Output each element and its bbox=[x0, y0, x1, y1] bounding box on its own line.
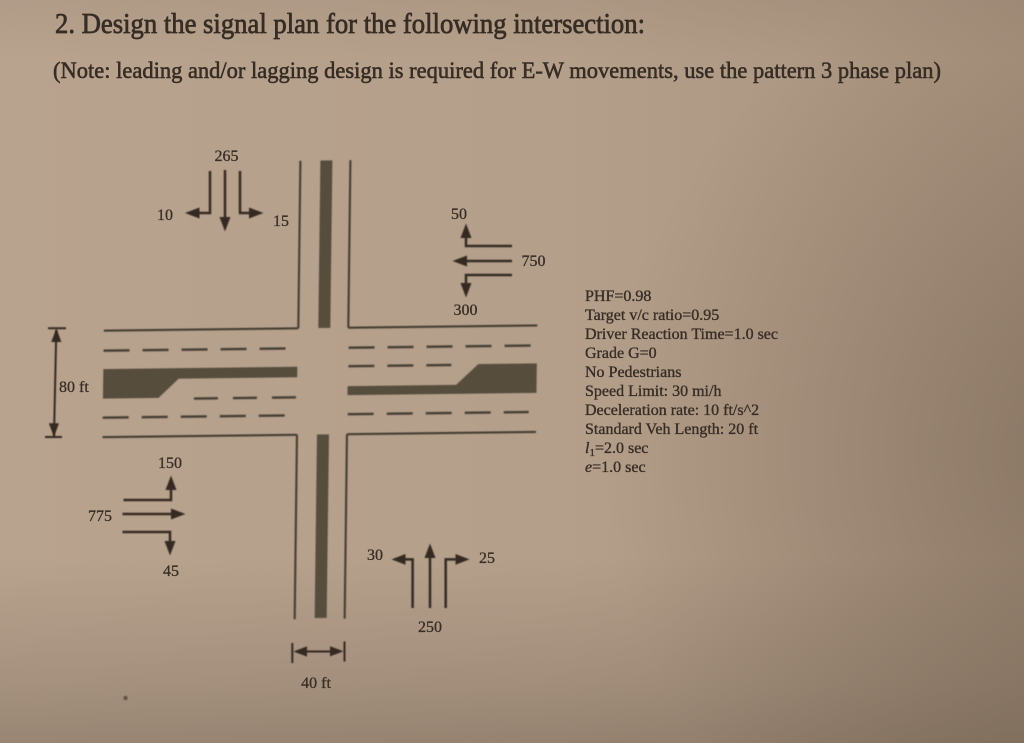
svg-text:2. Design the signal plan for: 2. Design the signal plan for the follow… bbox=[55, 9, 645, 40]
svg-text:Target v/c ratio=0.95: Target v/c ratio=0.95 bbox=[585, 307, 719, 324]
svg-text:Grade G=0: Grade G=0 bbox=[585, 345, 657, 362]
svg-text:(Note: leading and/or lagging: (Note: leading and/or lagging design is … bbox=[53, 58, 941, 83]
svg-text:45: 45 bbox=[163, 563, 179, 580]
svg-text:750: 750 bbox=[522, 253, 546, 270]
svg-text:50: 50 bbox=[451, 206, 467, 223]
svg-text:15: 15 bbox=[273, 213, 289, 230]
svg-text:30: 30 bbox=[367, 547, 383, 564]
svg-text:265: 265 bbox=[215, 148, 239, 165]
svg-text:l1=2.0 sec: l1=2.0 sec bbox=[585, 440, 648, 459]
svg-text:80 ft: 80 ft bbox=[59, 379, 89, 396]
svg-text:775: 775 bbox=[88, 508, 112, 525]
svg-text:40 ft: 40 ft bbox=[301, 675, 331, 692]
svg-text:e=1.0 sec: e=1.0 sec bbox=[585, 459, 646, 476]
svg-text:No Pedestrians: No Pedestrians bbox=[585, 364, 681, 381]
svg-text:25: 25 bbox=[479, 550, 495, 567]
svg-text:150: 150 bbox=[158, 455, 182, 472]
svg-text:250: 250 bbox=[418, 619, 442, 636]
svg-text:Speed Limit: 30 mi/h: Speed Limit: 30 mi/h bbox=[585, 383, 721, 400]
svg-text:300: 300 bbox=[454, 302, 478, 319]
svg-text:Driver Reaction Time=1.0 sec: Driver Reaction Time=1.0 sec bbox=[585, 326, 778, 343]
svg-text:10: 10 bbox=[157, 207, 173, 224]
svg-text:Standard Veh Length: 20 ft: Standard Veh Length: 20 ft bbox=[585, 421, 759, 438]
svg-text:PHF=0.98: PHF=0.98 bbox=[585, 288, 651, 305]
svg-text:Deceleration rate: 10 ft/s^2: Deceleration rate: 10 ft/s^2 bbox=[585, 402, 759, 419]
